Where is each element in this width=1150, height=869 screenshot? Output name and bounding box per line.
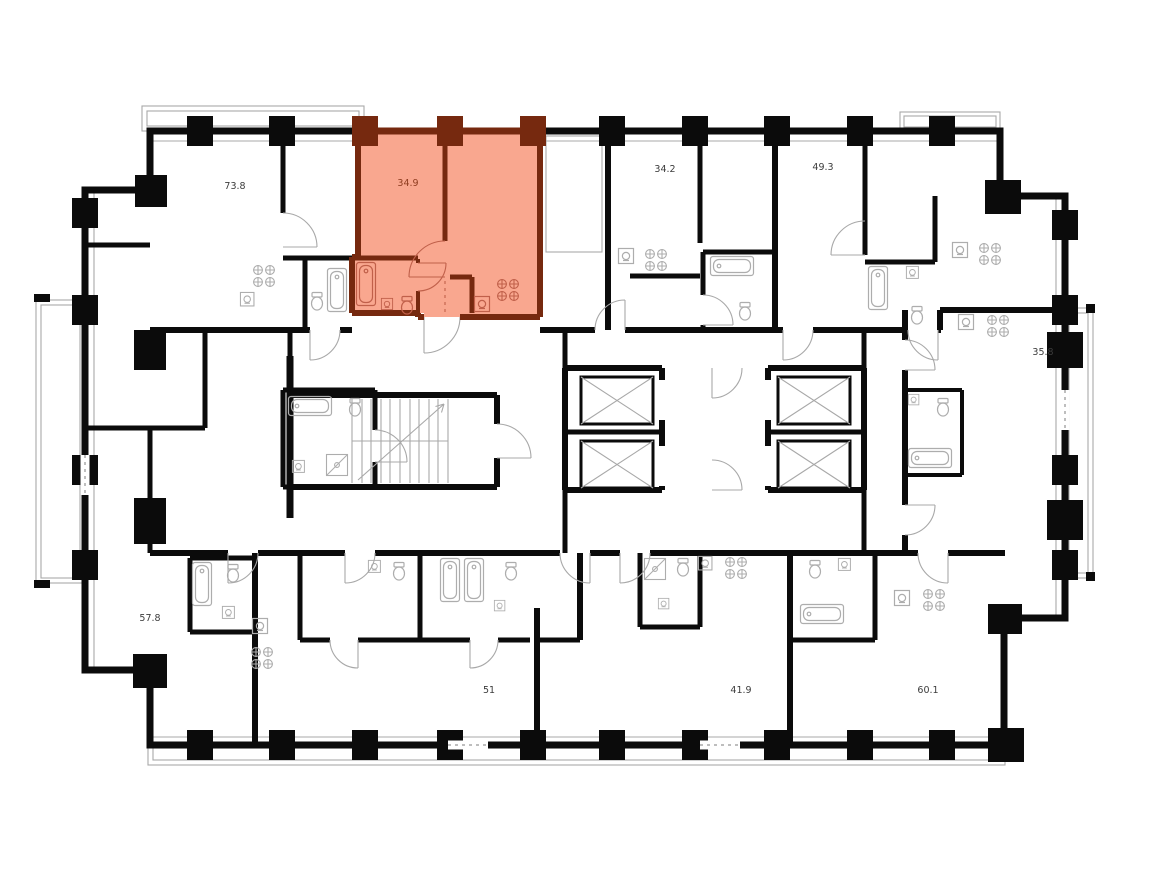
balcony-post — [34, 580, 50, 588]
bottom-row-partitions — [190, 553, 875, 640]
floor-plan-canvas: 73.8 34.2 49.3 35.8 57.8 51 41.9 60.1 34… — [0, 0, 1150, 869]
door-arc — [424, 317, 460, 353]
stair-treads — [352, 399, 448, 483]
corner-column — [988, 604, 1022, 634]
column — [599, 116, 625, 146]
column — [352, 730, 378, 760]
column — [599, 730, 625, 760]
column — [1052, 295, 1078, 325]
shower-icon — [327, 455, 348, 476]
column — [1052, 550, 1078, 580]
unit-area-label[interactable]: 34.9 — [397, 178, 418, 189]
balcony-left — [36, 300, 85, 583]
toilet-icon — [394, 563, 405, 581]
door-arc — [918, 553, 948, 583]
column — [1052, 455, 1078, 485]
unit-area-label[interactable]: 34.2 — [654, 164, 675, 175]
stove-icon — [979, 243, 1001, 265]
toilet-icon — [678, 559, 689, 577]
door-arc — [703, 295, 733, 325]
wall-column — [134, 330, 166, 370]
column — [929, 730, 955, 760]
bath-sink-icon — [494, 600, 505, 611]
bath-sink-icon — [838, 558, 850, 570]
door-arc — [831, 221, 865, 255]
balcony-top-left — [142, 106, 364, 131]
bath-sink-icon — [908, 394, 919, 405]
fixtures — [193, 243, 1010, 670]
unit-labels: 73.8 34.2 49.3 35.8 57.8 51 41.9 60.1 — [139, 162, 1053, 696]
column — [764, 116, 790, 146]
bathtub-icon — [801, 605, 844, 624]
kitchen-sink-icon — [619, 249, 634, 264]
bathtub-icon — [465, 559, 484, 602]
wall-column — [134, 498, 166, 544]
balcony-post — [1086, 572, 1095, 581]
column — [929, 116, 955, 146]
corner-column — [988, 728, 1024, 762]
bathtub-icon — [909, 449, 952, 468]
kitchen-sink-icon — [895, 591, 910, 606]
balcony-post — [34, 294, 50, 302]
column — [520, 116, 546, 146]
wall-column — [1047, 500, 1083, 540]
toilet-icon — [912, 307, 923, 325]
toilet-icon — [810, 561, 821, 579]
kitchen-sink-icon — [240, 292, 254, 306]
kitchen-sink-icon — [953, 243, 968, 258]
shower-icon — [645, 559, 666, 580]
corner-column — [985, 180, 1021, 214]
column — [72, 295, 98, 325]
elevator-bank-walls — [565, 368, 864, 490]
corner-column — [133, 654, 167, 688]
toilet-icon — [350, 399, 361, 417]
unit-area-label[interactable]: 51 — [483, 685, 495, 696]
column — [847, 730, 873, 760]
window-glazing — [94, 141, 1056, 737]
highlighted-unit-label: 34.9 — [397, 178, 418, 189]
door-arc — [905, 340, 935, 370]
door-arc — [908, 330, 938, 360]
column — [269, 116, 295, 146]
stove-icon — [253, 265, 275, 287]
balcony-top-left-inner — [147, 111, 359, 126]
bathtub-icon — [289, 397, 332, 416]
column — [764, 730, 790, 760]
unit-area-label[interactable]: 49.3 — [812, 162, 833, 173]
column — [187, 730, 213, 760]
door-arc — [712, 460, 742, 490]
bathtub-icon — [441, 559, 460, 602]
toilet-icon — [740, 303, 751, 321]
bathtub-icon — [328, 269, 347, 312]
unit-area-label[interactable]: 60.1 — [917, 685, 938, 696]
bath-sink-icon — [658, 598, 669, 609]
column — [72, 550, 98, 580]
balcony-left-inner — [41, 305, 80, 578]
column — [847, 116, 873, 146]
column — [437, 116, 463, 146]
balcony-post — [1086, 304, 1095, 313]
unit-area-label[interactable]: 41.9 — [730, 685, 751, 696]
outer-walls — [85, 131, 1065, 745]
building-perimeter-wall — [85, 131, 1065, 745]
bath-sink-icon — [368, 560, 380, 572]
bathtub-icon — [869, 267, 888, 310]
door-arc — [283, 213, 317, 247]
toilet-icon — [938, 399, 949, 417]
door-arc — [330, 640, 358, 668]
mid-left-partitions — [85, 330, 375, 553]
door-arc — [712, 368, 742, 398]
bath-sink-icon — [906, 266, 918, 278]
bath-sink-icon — [292, 460, 304, 472]
unit-area-label[interactable]: 57.8 — [139, 613, 160, 624]
bathtub-icon — [711, 257, 754, 276]
column — [72, 198, 98, 228]
column — [352, 116, 378, 146]
door-arc — [470, 640, 498, 668]
door-arc — [905, 505, 935, 535]
door-arc — [375, 430, 407, 462]
toilet-icon — [312, 293, 323, 311]
toilet-icon — [506, 563, 517, 581]
door-arc — [783, 330, 813, 360]
column — [269, 730, 295, 760]
unit-area-label[interactable]: 73.8 — [224, 181, 245, 192]
bathtub-icon — [193, 563, 212, 606]
column — [520, 730, 546, 760]
door-arc — [310, 330, 340, 360]
corner-column — [135, 175, 167, 207]
kitchen-sink-icon — [959, 315, 974, 330]
bath-sink-icon — [222, 606, 234, 618]
column — [1052, 210, 1078, 240]
stove-icon — [987, 315, 1009, 337]
stove-icon — [725, 557, 747, 579]
floor-plan-svg: 73.8 34.2 49.3 35.8 57.8 51 41.9 60.1 34… — [0, 0, 1150, 869]
unit-area-label[interactable]: 35.8 — [1032, 347, 1053, 358]
door-arc — [560, 553, 590, 583]
column — [682, 116, 708, 146]
column — [187, 116, 213, 146]
stove-icon — [645, 249, 667, 271]
toilet-icon — [228, 565, 239, 583]
shaft-strip-outline — [546, 136, 602, 252]
door-arc — [497, 424, 531, 458]
interior-walls — [85, 131, 1065, 745]
window-lines — [94, 141, 1056, 737]
stove-icon — [923, 589, 945, 611]
door-arc — [345, 553, 375, 583]
